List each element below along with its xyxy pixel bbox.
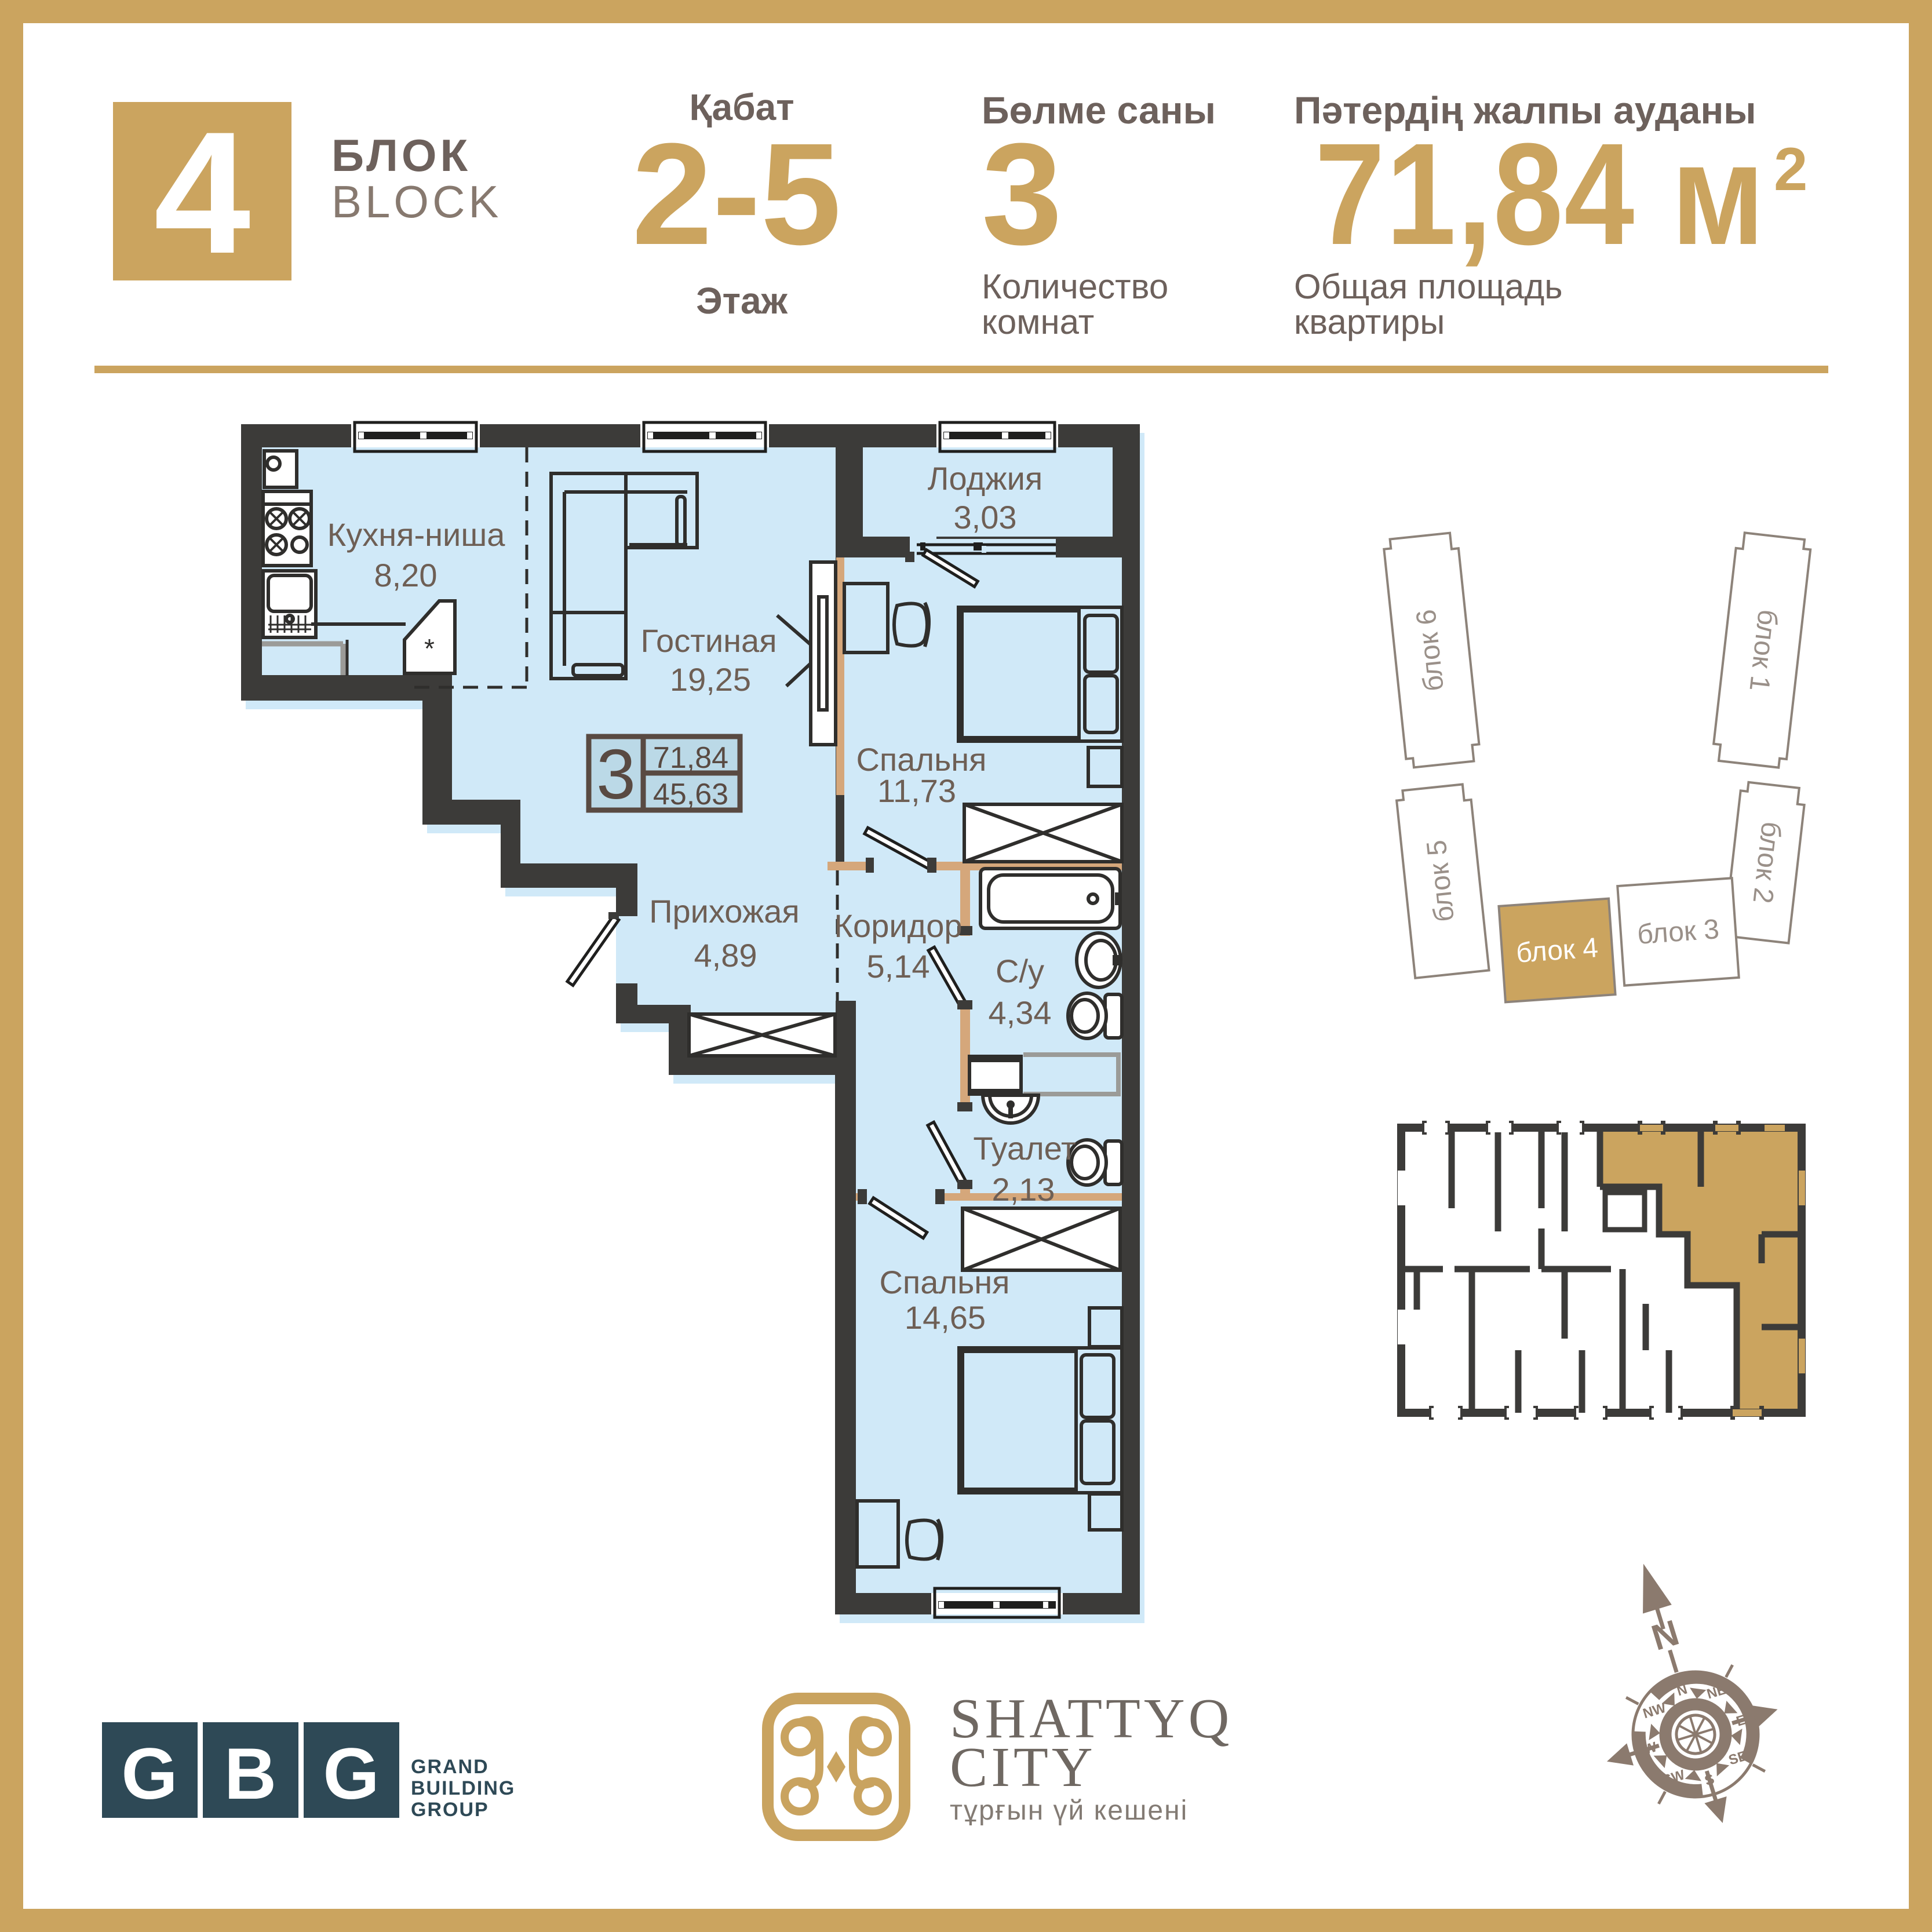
svg-text:4,34: 4,34 xyxy=(989,994,1052,1031)
svg-text:*: * xyxy=(424,633,435,664)
svg-text:Спальня: Спальня xyxy=(879,1264,1009,1300)
svg-text:71,84: 71,84 xyxy=(653,741,728,775)
svg-text:блок 3: блок 3 xyxy=(1636,914,1720,950)
svg-text:G: G xyxy=(323,1734,379,1814)
svg-text:4,89: 4,89 xyxy=(694,937,757,974)
svg-text:2,13: 2,13 xyxy=(992,1171,1055,1208)
svg-text:Гостиная: Гостиная xyxy=(640,622,777,659)
svg-text:Туалет: Туалет xyxy=(973,1130,1076,1167)
svg-text:Прихожая: Прихожая xyxy=(649,893,800,929)
svg-text:С/у: С/у xyxy=(996,953,1044,989)
svg-text:тұрғын үй кешені: тұрғын үй кешені xyxy=(950,1795,1188,1826)
svg-text:45,63: 45,63 xyxy=(653,778,728,811)
svg-text:5,14: 5,14 xyxy=(867,948,930,985)
svg-text:8,20: 8,20 xyxy=(374,557,438,593)
svg-text:G: G xyxy=(121,1734,177,1814)
svg-text:3,03: 3,03 xyxy=(954,499,1017,535)
svg-text:BUILDING: BUILDING xyxy=(411,1777,515,1799)
svg-text:B: B xyxy=(224,1734,276,1814)
svg-text:S: S xyxy=(1703,1771,1716,1789)
svg-text:Лоджия: Лоджия xyxy=(928,460,1042,497)
svg-text:14,65: 14,65 xyxy=(905,1299,986,1336)
svg-text:11,73: 11,73 xyxy=(877,772,956,809)
svg-text:Кухня-ниша: Кухня-ниша xyxy=(327,516,506,553)
svg-text:GROUP: GROUP xyxy=(411,1799,489,1821)
svg-text:CITY: CITY xyxy=(950,1736,1096,1799)
svg-text:N: N xyxy=(1647,1613,1683,1658)
svg-text:Коридор: Коридор xyxy=(834,907,962,944)
svg-text:GRAND: GRAND xyxy=(411,1756,489,1778)
svg-text:блок 4: блок 4 xyxy=(1515,932,1599,969)
svg-text:3: 3 xyxy=(596,735,636,814)
svg-text:19,25: 19,25 xyxy=(670,661,751,698)
